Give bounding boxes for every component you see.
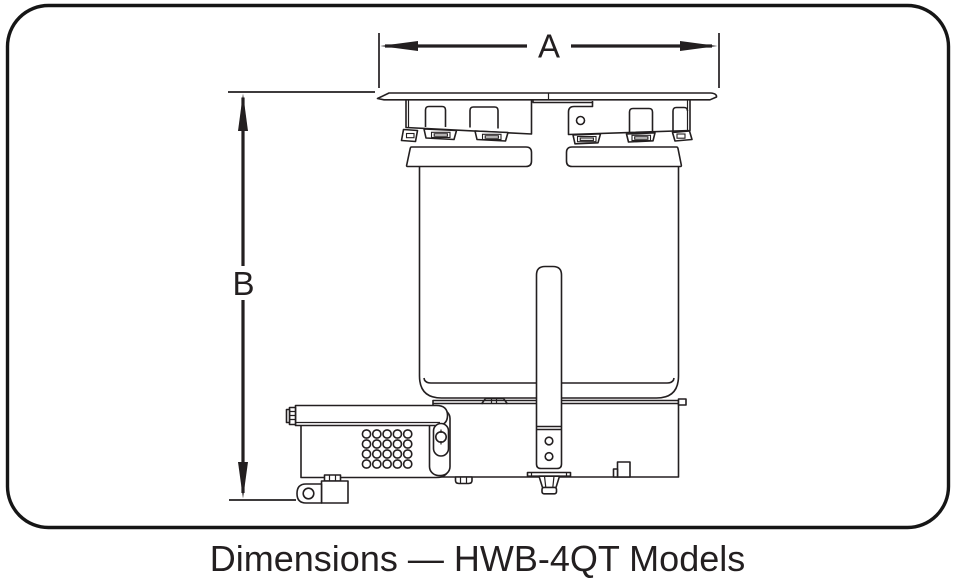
drain-cap xyxy=(542,488,557,494)
dimension-b-label: B xyxy=(232,265,254,302)
well-top-band-right xyxy=(567,147,682,167)
slot-tab xyxy=(673,131,693,141)
latch xyxy=(434,424,449,457)
dimension-diagram: A B Dimensions — HWB-4QT Models xyxy=(0,0,955,582)
conduit-fitting xyxy=(287,408,296,425)
figure-container: A B Dimensions — HWB-4QT Models xyxy=(0,0,955,582)
control-box-body xyxy=(301,420,450,478)
control-box xyxy=(287,406,451,478)
dimension-a-label: A xyxy=(538,28,560,65)
drain-nut xyxy=(539,476,560,487)
slot-tab xyxy=(475,131,508,141)
slot-tab xyxy=(573,134,601,144)
frame-right-tab xyxy=(679,399,687,405)
slot-tab xyxy=(424,129,457,140)
frame-bottom-tab xyxy=(456,477,473,484)
well-top-band-left xyxy=(407,147,532,167)
slot-tab xyxy=(402,130,418,142)
figure-caption: Dimensions — HWB-4QT Models xyxy=(210,538,745,579)
slot-tab xyxy=(627,133,656,142)
